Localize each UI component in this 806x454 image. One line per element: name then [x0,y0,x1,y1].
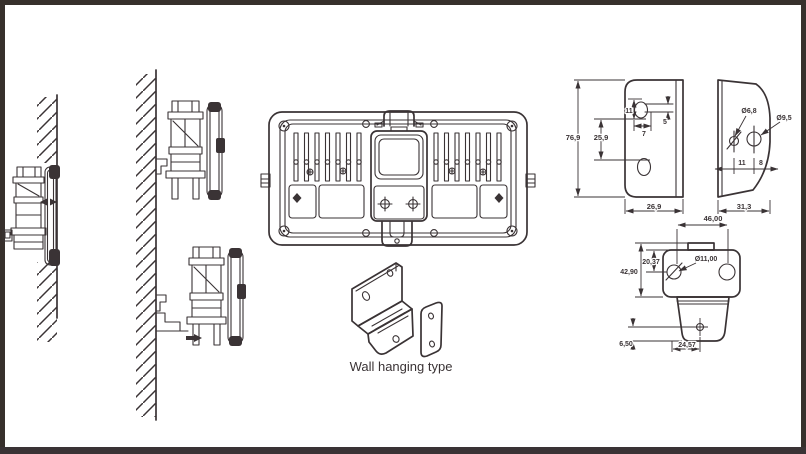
dim-offset-left-label: 11 [738,160,746,167]
dim-plate-height-label: 76,9 [566,133,581,142]
dim-slot-width-label: 7 [642,131,646,138]
plate-side-view: Ø6,8 Ø9,5 11 8 31,3 [715,80,792,214]
wall-hatch [37,262,57,342]
dim-bracket-height-label: 42,90 [620,269,638,276]
heatsink-fins-right [434,133,501,181]
dim-plate-width-label: 26,9 [647,202,662,211]
top-handle [375,111,423,127]
drawing-svg: Wall hanging type 76,9 25,9 11 7 5 26,9 [0,0,806,454]
dim-hole-offset-label: 25,9 [594,133,609,142]
wall-hanging-type-label: Wall hanging type [350,359,453,374]
technical-drawing-sheet: Wall hanging type 76,9 25,9 11 7 5 26,9 [0,0,806,454]
dim-slot-gap-label: 5 [663,119,667,126]
wall-mount-view-1 [3,95,60,342]
heatsink-fins-left [294,133,361,181]
dim-hole-offset-top-label: 20,37 [642,259,660,266]
dim-offset-right-label: 8 [759,160,763,167]
bracket-top-view: 46,00 Ø11,00 20,37 42,90 6,50 24,57 [619,214,740,352]
terminal-blocks [289,185,507,218]
wall-hatch [37,97,57,163]
sheet-border [3,3,804,452]
sheet-border-bottom [0,447,806,454]
wall-mount-view-2 [136,70,246,420]
bottom-hook [382,222,412,246]
dim-hole-spacing-label: 46,00 [704,214,723,223]
bracket-iso-view [352,263,413,354]
floodlight-profile-hooked [156,101,225,200]
floodlight-profile-horizontal [3,167,46,249]
dim-foot-hole-height-label: 6,50 [619,341,633,348]
dim-large-hole-label: Ø9,5 [776,115,791,122]
floodlight-rear-view [261,111,535,246]
dim-small-hole-label: Ø6,8 [741,108,756,115]
dim-side-width-label: 31,3 [737,202,752,211]
center-module [371,127,427,221]
wall-hatch [136,74,156,417]
plate-front-view: 76,9 25,9 11 7 5 26,9 [566,80,683,214]
dim-foot-hole-spacing-label: 24,57 [678,342,696,349]
cover-plate-iso-view [421,302,442,356]
dim-hole-diameter-label: Ø11,00 [695,256,718,263]
floodlight-profile-unhooked [156,247,246,346]
dim-slot-offset-label: 11 [625,108,633,115]
